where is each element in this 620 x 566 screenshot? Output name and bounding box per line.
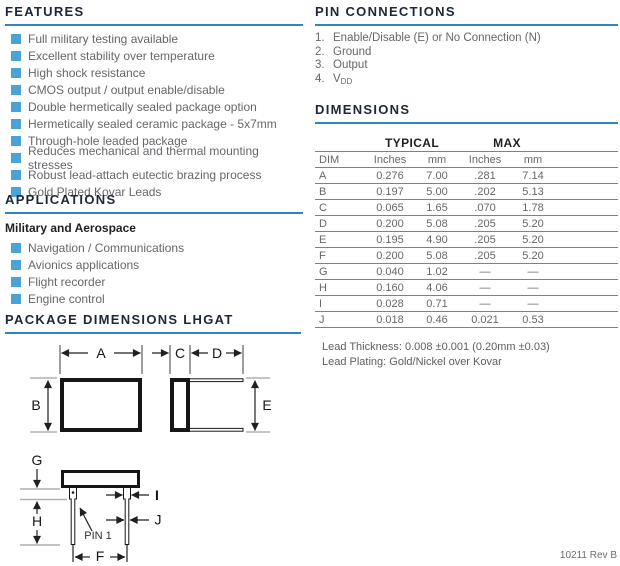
cell-typ-mm: 5.08 xyxy=(415,248,459,264)
cell-dim: C xyxy=(315,200,365,216)
bullet-square-icon xyxy=(11,51,21,61)
table-row: E 0.195 4.90 .205 5.20 xyxy=(315,232,618,248)
cell-max-in: .205 xyxy=(459,232,511,248)
cell-max-in: — xyxy=(459,264,511,280)
cell-max-in: .070 xyxy=(459,200,511,216)
dim-label-b: B xyxy=(31,397,40,413)
table-row: H 0.160 4.06 — — xyxy=(315,280,618,296)
table-filler-cell xyxy=(555,232,618,248)
table-row: G 0.040 1.02 — — xyxy=(315,264,618,280)
package-dimensions-section: PACKAGE DIMENSIONS LHGAT xyxy=(5,310,301,334)
bullet-square-icon xyxy=(11,260,21,270)
cell-dim: F xyxy=(315,248,365,264)
cell-max-in: .205 xyxy=(459,216,511,232)
cell-typ-in: 0.197 xyxy=(365,184,415,200)
application-item: Navigation / Communications xyxy=(5,239,303,256)
table-row: C 0.065 1.65 .070 1.78 xyxy=(315,200,618,216)
cell-max-mm: 5.20 xyxy=(511,216,555,232)
application-label: Avionics applications xyxy=(28,258,139,272)
cell-typ-in: 0.200 xyxy=(365,248,415,264)
pin-label-subscript: DD xyxy=(341,77,353,86)
cell-typ-in: 0.040 xyxy=(365,264,415,280)
cell-typ-mm: 0.71 xyxy=(415,296,459,312)
revision-footer: 10211 Rev B xyxy=(560,550,617,561)
table-filler-cell xyxy=(555,134,618,152)
bullet-square-icon xyxy=(11,277,21,287)
cell-typ-in: 0.195 xyxy=(365,232,415,248)
dim-label-h: H xyxy=(32,513,42,529)
feature-item: Reduces mechanical and thermal mounting … xyxy=(5,149,303,166)
applications-title: APPLICATIONS xyxy=(5,190,303,214)
application-label: Navigation / Communications xyxy=(28,241,184,255)
pin1-label: PIN 1 xyxy=(84,530,112,542)
dim-label-e: E xyxy=(262,397,271,413)
table-row: I 0.028 0.71 — — xyxy=(315,296,618,312)
cell-typ-mm: 5.00 xyxy=(415,184,459,200)
cell-typ-in: 0.018 xyxy=(365,312,415,328)
cell-dim: G xyxy=(315,264,365,280)
table-filler-cell xyxy=(555,168,618,184)
dim-label-a: A xyxy=(96,345,106,361)
cell-typ-in: 0.160 xyxy=(365,280,415,296)
cell-max-mm: 1.78 xyxy=(511,200,555,216)
cell-max-mm: — xyxy=(511,280,555,296)
table-filler-cell xyxy=(555,264,618,280)
pin-item: 1.Enable/Disable (E) or No Connection (N… xyxy=(315,32,618,46)
col-header-max-inches: Inches xyxy=(459,152,511,168)
cell-max-in: — xyxy=(459,296,511,312)
cell-max-mm: — xyxy=(511,264,555,280)
table-filler-cell xyxy=(555,184,618,200)
typical-group-header: TYPICAL xyxy=(365,134,459,152)
dimensions-section: DIMENSIONS TYPICAL MAX DIM Inches mm Inc… xyxy=(315,100,618,328)
cell-max-mm: 5.20 xyxy=(511,248,555,264)
col-header-typ-inches: Inches xyxy=(365,152,415,168)
cell-typ-mm: 0.46 xyxy=(415,312,459,328)
cell-typ-mm: 1.65 xyxy=(415,200,459,216)
pin-item: 3.Output xyxy=(315,59,618,73)
cell-dim: J xyxy=(315,312,365,328)
feature-item: Robust lead-attach eutectic brazing proc… xyxy=(5,166,303,183)
bullet-square-icon xyxy=(11,68,21,78)
table-row: J 0.018 0.46 0.021 0.53 xyxy=(315,312,618,328)
bullet-square-icon xyxy=(11,119,21,129)
bullet-square-icon xyxy=(11,34,21,44)
table-column-header-row: DIM Inches mm Inches mm xyxy=(315,152,618,168)
table-row: B 0.197 5.00 .202 5.13 xyxy=(315,184,618,200)
cell-typ-mm: 5.08 xyxy=(415,216,459,232)
application-item: Engine control xyxy=(5,290,303,307)
package-dimensions-title: PACKAGE DIMENSIONS LHGAT xyxy=(5,310,301,334)
pin-list: 1.Enable/Disable (E) or No Connection (N… xyxy=(315,32,618,86)
cell-dim: D xyxy=(315,216,365,232)
table-filler-cell xyxy=(555,312,618,328)
applications-list: Navigation / Communications Avionics app… xyxy=(5,239,303,307)
dim-label-d: D xyxy=(212,345,222,361)
col-header-max-mm: mm xyxy=(511,152,555,168)
cell-typ-mm: 4.90 xyxy=(415,232,459,248)
feature-item: Full military testing available xyxy=(5,30,303,47)
feature-item: Excellent stability over temperature xyxy=(5,47,303,64)
cell-typ-mm: 7.00 xyxy=(415,168,459,184)
cell-typ-mm: 1.02 xyxy=(415,264,459,280)
cell-dim: A xyxy=(315,168,365,184)
pin-item: 4.VDD xyxy=(315,73,618,87)
lead-plating-note: Lead Plating: Gold/Nickel over Kovar xyxy=(322,355,550,370)
bullet-square-icon xyxy=(11,170,21,180)
applications-section: APPLICATIONS Military and Aerospace Navi… xyxy=(5,190,303,307)
max-group-header: MAX xyxy=(459,134,555,152)
bullet-square-icon xyxy=(11,294,21,304)
applications-subtitle: Military and Aerospace xyxy=(5,221,303,235)
feature-label: Robust lead-attach eutectic brazing proc… xyxy=(28,168,261,182)
bullet-square-icon xyxy=(11,136,21,146)
col-header-typ-mm: mm xyxy=(415,152,459,168)
pin-connections-section: PIN CONNECTIONS 1.Enable/Disable (E) or … xyxy=(315,2,618,86)
table-filler-cell xyxy=(555,200,618,216)
table-corner-cell xyxy=(315,134,365,152)
package-front-view-drawing: G H I J PIN 1 F xyxy=(0,448,300,566)
cell-max-in: — xyxy=(459,280,511,296)
bullet-square-icon xyxy=(11,85,21,95)
cell-dim: E xyxy=(315,232,365,248)
features-section: FEATURES Full military testing available… xyxy=(5,2,303,200)
cell-max-mm: 7.14 xyxy=(511,168,555,184)
cell-typ-in: 0.200 xyxy=(365,216,415,232)
feature-label: Hermetically sealed ceramic package - 5x… xyxy=(28,117,277,131)
cell-typ-in: 0.028 xyxy=(365,296,415,312)
dimensions-table: TYPICAL MAX DIM Inches mm Inches mm A 0.… xyxy=(315,134,618,328)
dim-label-c: C xyxy=(175,345,185,361)
pin-label: Enable/Disable (E) or No Connection (N) xyxy=(333,32,541,44)
application-label: Flight recorder xyxy=(28,275,105,289)
feature-item: CMOS output / output enable/disable xyxy=(5,81,303,98)
table-filler-cell xyxy=(555,296,618,312)
cell-max-in: .202 xyxy=(459,184,511,200)
pin-connections-title: PIN CONNECTIONS xyxy=(315,2,618,26)
table-row: D 0.200 5.08 .205 5.20 xyxy=(315,216,618,232)
application-item: Avionics applications xyxy=(5,256,303,273)
cell-typ-in: 0.276 xyxy=(365,168,415,184)
dim-label-f: F xyxy=(96,548,105,564)
table-filler-cell xyxy=(555,152,618,168)
dim-label-j: J xyxy=(155,512,162,528)
pin-number: 2. xyxy=(315,46,333,58)
datasheet-page: FEATURES Full military testing available… xyxy=(0,0,620,566)
col-header-dim: DIM xyxy=(315,152,365,168)
table-row: A 0.276 7.00 .281 7.14 xyxy=(315,168,618,184)
lead-notes: Lead Thickness: 0.008 ±0.001 (0.20mm ±0.… xyxy=(322,340,550,370)
bullet-square-icon xyxy=(11,102,21,112)
package-outlines xyxy=(62,379,243,431)
application-item: Flight recorder xyxy=(5,273,303,290)
cell-typ-in: 0.065 xyxy=(365,200,415,216)
feature-label: High shock resistance xyxy=(28,66,145,80)
cell-dim: H xyxy=(315,280,365,296)
lead-thickness-note: Lead Thickness: 0.008 ±0.001 (0.20mm ±0.… xyxy=(322,340,550,355)
table-filler-cell xyxy=(555,280,618,296)
bullet-square-icon xyxy=(11,243,21,253)
cell-max-mm: 5.20 xyxy=(511,232,555,248)
dim-label-i: I xyxy=(155,487,159,503)
table-row: F 0.200 5.08 .205 5.20 xyxy=(315,248,618,264)
table-filler-cell xyxy=(555,216,618,232)
cell-max-mm: — xyxy=(511,296,555,312)
pin-label: V xyxy=(333,73,341,85)
bullet-square-icon xyxy=(11,153,21,163)
package-top-side-view-drawing: A C D B E xyxy=(0,338,300,450)
table-group-header-row: TYPICAL MAX xyxy=(315,134,618,152)
pin1-marker-dot xyxy=(72,491,75,494)
dim-label-g: G xyxy=(32,452,43,468)
cell-max-mm: 0.53 xyxy=(511,312,555,328)
cell-max-in: .281 xyxy=(459,168,511,184)
application-label: Engine control xyxy=(28,292,105,306)
feature-label: Excellent stability over temperature xyxy=(28,49,215,63)
cell-typ-mm: 4.06 xyxy=(415,280,459,296)
pin-label: Ground xyxy=(333,46,371,58)
cell-max-in: .205 xyxy=(459,248,511,264)
pin-label: Output xyxy=(333,59,368,71)
pin-number: 1. xyxy=(315,32,333,44)
feature-item: Double hermetically sealed package optio… xyxy=(5,98,303,115)
cell-dim: B xyxy=(315,184,365,200)
pin-item: 2.Ground xyxy=(315,46,618,60)
cell-max-in: 0.021 xyxy=(459,312,511,328)
feature-item: High shock resistance xyxy=(5,64,303,81)
features-list: Full military testing available Excellen… xyxy=(5,30,303,200)
features-title: FEATURES xyxy=(5,2,303,26)
feature-label: CMOS output / output enable/disable xyxy=(28,83,225,97)
feature-label: Full military testing available xyxy=(28,32,178,46)
pin-number: 3. xyxy=(315,59,333,71)
pin-number: 4. xyxy=(315,73,333,85)
dimensions-title: DIMENSIONS xyxy=(315,100,618,124)
cell-max-mm: 5.13 xyxy=(511,184,555,200)
feature-item: Hermetically sealed ceramic package - 5x… xyxy=(5,115,303,132)
table-filler-cell xyxy=(555,248,618,264)
cell-dim: I xyxy=(315,296,365,312)
feature-label: Double hermetically sealed package optio… xyxy=(28,100,257,114)
